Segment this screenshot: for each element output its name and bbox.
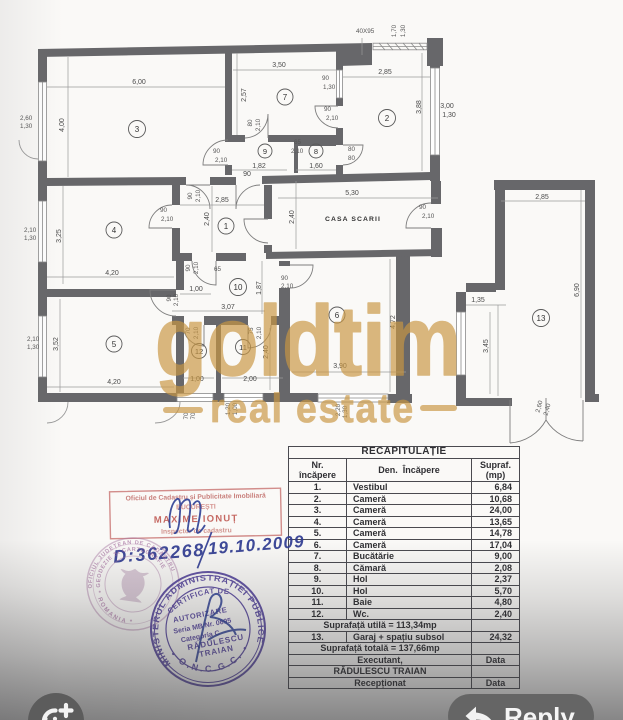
svg-text:MAXIME IONUȚ: MAXIME IONUȚ — [154, 513, 239, 526]
